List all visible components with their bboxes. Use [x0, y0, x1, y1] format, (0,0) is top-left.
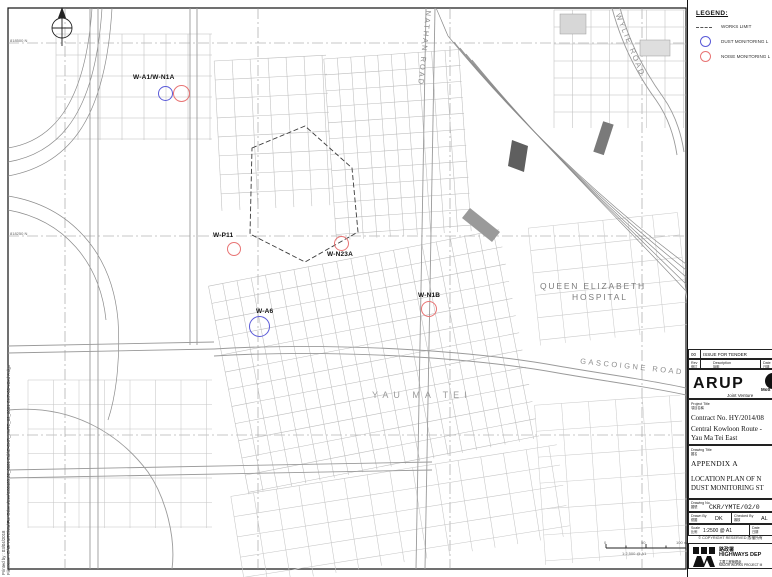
- firm-block: ARUP Mott Joint Venture: [688, 369, 772, 399]
- department-name-en: HIGHWAYS DEP: [719, 552, 761, 558]
- legend: LEGEND: WORKS LIMIT DUST MONITORING L NO…: [696, 10, 772, 70]
- scale-bar-zero: 0: [604, 540, 606, 545]
- plot-info: Printed by : 03/04/2018 Filename : E:\G …: [1, 15, 11, 575]
- station-label: W-N1B: [418, 292, 440, 299]
- noise-marker-icon: [421, 301, 437, 317]
- dark-structures: [462, 14, 670, 242]
- dust-legend-icon: [700, 36, 711, 47]
- station-w-a6: W-A6: [246, 308, 296, 342]
- project-title-label-cn: 項目名稱: [691, 406, 704, 410]
- date-label-cn: 日期: [752, 530, 758, 534]
- scale-label-cn: 比例: [691, 530, 697, 534]
- drawn-checked-row: Drawn By 繪圖 DK Checked By 審核 AL: [688, 512, 772, 524]
- scale-value: 1:2500 @ A1: [703, 528, 732, 534]
- station-w-n23a: W-N23A: [325, 236, 375, 262]
- dust-marker-icon: [158, 86, 173, 101]
- revision-description: ISSUE FOR TENDER: [703, 352, 747, 357]
- place-label-queen-elizabeth: QUEEN ELIZABETH: [540, 281, 646, 291]
- project-name-line1: Central Kowloon Route -: [691, 425, 762, 433]
- contract-number: Contract No. HY/2014/08: [691, 414, 764, 422]
- grid-northing-label: 818250 N: [10, 231, 27, 236]
- station-label: W-N23A: [327, 251, 353, 258]
- station-w-p11: W-P11: [210, 232, 260, 260]
- mott-label: Mott: [761, 387, 771, 392]
- dust-marker-icon: [249, 316, 270, 337]
- joint-venture-label: Joint Venture: [727, 393, 753, 398]
- drawing-no-label-cn: 圖號: [691, 505, 697, 509]
- project-title-block: Project Title 項目名稱 Contract No. HY/2014/…: [688, 399, 772, 445]
- scale-date-row: Scale 比例 1:2500 @ A1 Date 日期: [688, 524, 772, 536]
- copyright-notice: © COPYRIGHT RESERVED 版權所有: [688, 536, 772, 543]
- filename-value: E:\G YMTE\Wa\For Others\Lee\180403 02_00…: [6, 365, 11, 554]
- drawn-by-value: DK: [715, 516, 723, 522]
- checked-by-label-cn: 審核: [734, 518, 740, 522]
- station-label: W-A1/W-N1A: [133, 74, 174, 81]
- filename-label: Filename :: [6, 555, 11, 575]
- drawing-title-line1: LOCATION PLAN OF N: [691, 476, 761, 483]
- revision-row: 00 ISSUE FOR TENDER: [688, 349, 772, 359]
- scale-bar-hundred: 100 m: [676, 540, 687, 545]
- department-block: 路政署 HIGHWAYS DEP 主要工程管理處 MAJOR WORKS PRO…: [688, 543, 772, 569]
- scale-bar: [606, 544, 686, 548]
- place-label-hospital: HOSPITAL: [572, 292, 628, 302]
- checked-by-value: AL: [761, 516, 768, 522]
- scale-bar-caption: 1:2,500 @ A1: [622, 551, 646, 556]
- revision-header-row: Rev 修訂 Description 說明 Date 日期: [688, 359, 772, 369]
- appendix-label: APPENDIX A: [691, 459, 738, 468]
- station-label: W-A6: [256, 308, 273, 315]
- station-w-n1b: W-N1B: [415, 292, 465, 320]
- noise-legend-icon: [700, 51, 711, 62]
- drawing-title-line2: DUST MONITORING ST: [691, 485, 764, 492]
- north-arrow-icon: [52, 7, 72, 46]
- grid-northing-label: 818500 N: [10, 38, 27, 43]
- arup-logo: ARUP: [693, 375, 744, 393]
- noise-marker-icon: [227, 242, 241, 256]
- revision-number: 00: [691, 352, 696, 357]
- noise-marker-icon: [334, 236, 349, 251]
- department-unit-en: MAJOR WORKS PROJECT M: [719, 563, 762, 567]
- legend-noise-label: NOISE MONITORING L: [721, 54, 770, 59]
- drawing-number: CKR/YMTE/02/0: [709, 504, 760, 511]
- highways-department-logo-icon: [693, 547, 715, 567]
- title-block-panel: LEGEND: WORKS LIMIT DUST MONITORING L NO…: [687, 0, 772, 577]
- drawing-sheet: 818500 N 818250 N QUEEN ELIZABETH HOSPIT…: [0, 0, 772, 577]
- legend-works-limit-label: WORKS LIMIT: [721, 24, 751, 29]
- station-w-a1-w-n1a: W-A1/W-N1A: [130, 74, 200, 106]
- drawing-title-label-cn: 圖名: [691, 452, 697, 456]
- scale-bar-fifty: 50: [641, 540, 645, 545]
- place-label-yau-ma-tei: YAU MA TEI: [372, 390, 472, 400]
- legend-title: LEGEND:: [696, 10, 772, 17]
- noise-marker-icon: [173, 85, 190, 102]
- legend-dust-label: DUST MONITORING L: [721, 39, 768, 44]
- station-label: W-P11: [213, 232, 233, 239]
- drawn-by-label-cn: 繪圖: [691, 518, 697, 522]
- drawing-title-block: Drawing Title 圖名 APPENDIX A LOCATION PLA…: [688, 445, 772, 499]
- works-limit-swatch-icon: [696, 27, 712, 28]
- project-name-line2: Yau Ma Tei East: [691, 434, 737, 442]
- drawing-number-row: Drawing No. 圖號 CKR/YMTE/02/0: [688, 499, 772, 512]
